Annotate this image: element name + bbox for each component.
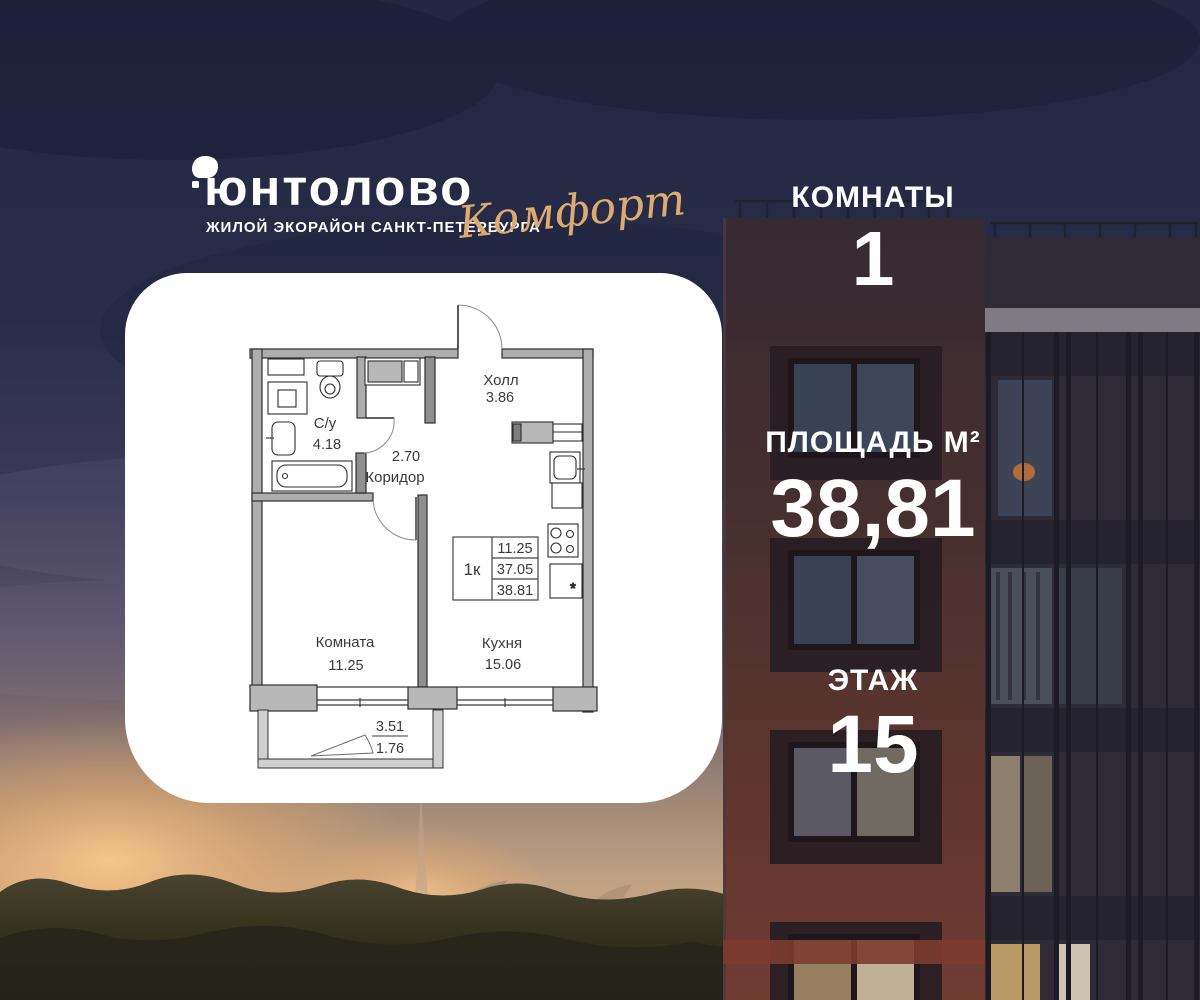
balcony-area-counted: 1.76 xyxy=(376,741,404,757)
wall-left xyxy=(252,349,262,687)
rooms-label: КОМНАТЫ xyxy=(723,181,1023,215)
corridor-area: 2.70 xyxy=(392,449,420,465)
wall-top-right xyxy=(502,349,593,358)
hall-label: Холл xyxy=(483,372,518,389)
room-label: Комната xyxy=(316,634,375,651)
washing-machine-drum xyxy=(278,390,296,407)
burner xyxy=(551,528,561,538)
entrance-door-arc xyxy=(458,305,502,349)
kitchen-sink-basin xyxy=(554,456,576,479)
bathroom-area: 4.18 xyxy=(313,437,341,453)
floor-label: ЭТАЖ xyxy=(723,664,1023,698)
fridge xyxy=(550,564,582,598)
listing-card-screen: юнтолово ЖИЛОЙ ЭКОРАЙОН САНКТ-ПЕТЕРБУРГА… xyxy=(0,0,1200,1000)
summary-type: 1к xyxy=(464,560,481,579)
burner xyxy=(551,543,561,553)
brick-accent-band xyxy=(723,940,985,964)
burner xyxy=(567,546,574,553)
building-glass-facade xyxy=(985,223,1200,1000)
bathroom-label: С/у xyxy=(314,415,337,432)
floor-value: 15 xyxy=(723,704,1023,786)
floor-plan: * 1к 11.25 37.05 38.81 Холл 3.86 С/у 4.1… xyxy=(125,273,722,803)
summary-total-area: 38.81 xyxy=(497,583,533,599)
kitchen-counter xyxy=(552,483,582,508)
balcony-door-swing xyxy=(311,735,373,756)
kitchen-fixtures: * xyxy=(548,452,585,598)
storage-fixtures xyxy=(365,358,582,443)
rooms-value: 1 xyxy=(723,221,1023,298)
bathroom-sink xyxy=(272,422,295,455)
kitchen-label: Кухня xyxy=(482,635,522,652)
bathtub-drain xyxy=(283,474,288,479)
bathroom-fixtures xyxy=(266,359,352,491)
brand-title: юнтолово xyxy=(204,162,473,213)
bathroom-door-arc xyxy=(364,418,394,453)
area-label: ПЛОЩАДЬ М² xyxy=(723,426,1023,460)
summary-living-area: 11.25 xyxy=(497,541,532,557)
balcony-area-full: 3.51 xyxy=(376,719,404,735)
shelf xyxy=(268,359,304,375)
toilet-tank xyxy=(317,361,343,376)
wall-right xyxy=(583,349,593,712)
wall-room-top xyxy=(252,493,373,501)
balcony xyxy=(258,710,443,768)
building xyxy=(723,201,1200,1000)
summary-area-no-balcony: 37.05 xyxy=(497,562,533,578)
wall-room-kitchen xyxy=(418,495,427,687)
burner xyxy=(567,531,574,538)
wall-corridor-hall xyxy=(425,357,435,423)
room-area: 11.25 xyxy=(328,658,363,674)
kitchen-area: 15.06 xyxy=(485,657,521,673)
window-piers xyxy=(250,685,597,711)
room-door-arc xyxy=(373,501,416,540)
hall-area: 3.86 xyxy=(486,390,514,406)
apartment-plan-card[interactable]: * 1к 11.25 37.05 38.81 Холл 3.86 С/у 4.1… xyxy=(125,273,722,803)
corridor-label: Коридор xyxy=(365,469,424,486)
fridge-mark: * xyxy=(570,581,576,597)
area-value: 38,81 xyxy=(723,468,1023,550)
